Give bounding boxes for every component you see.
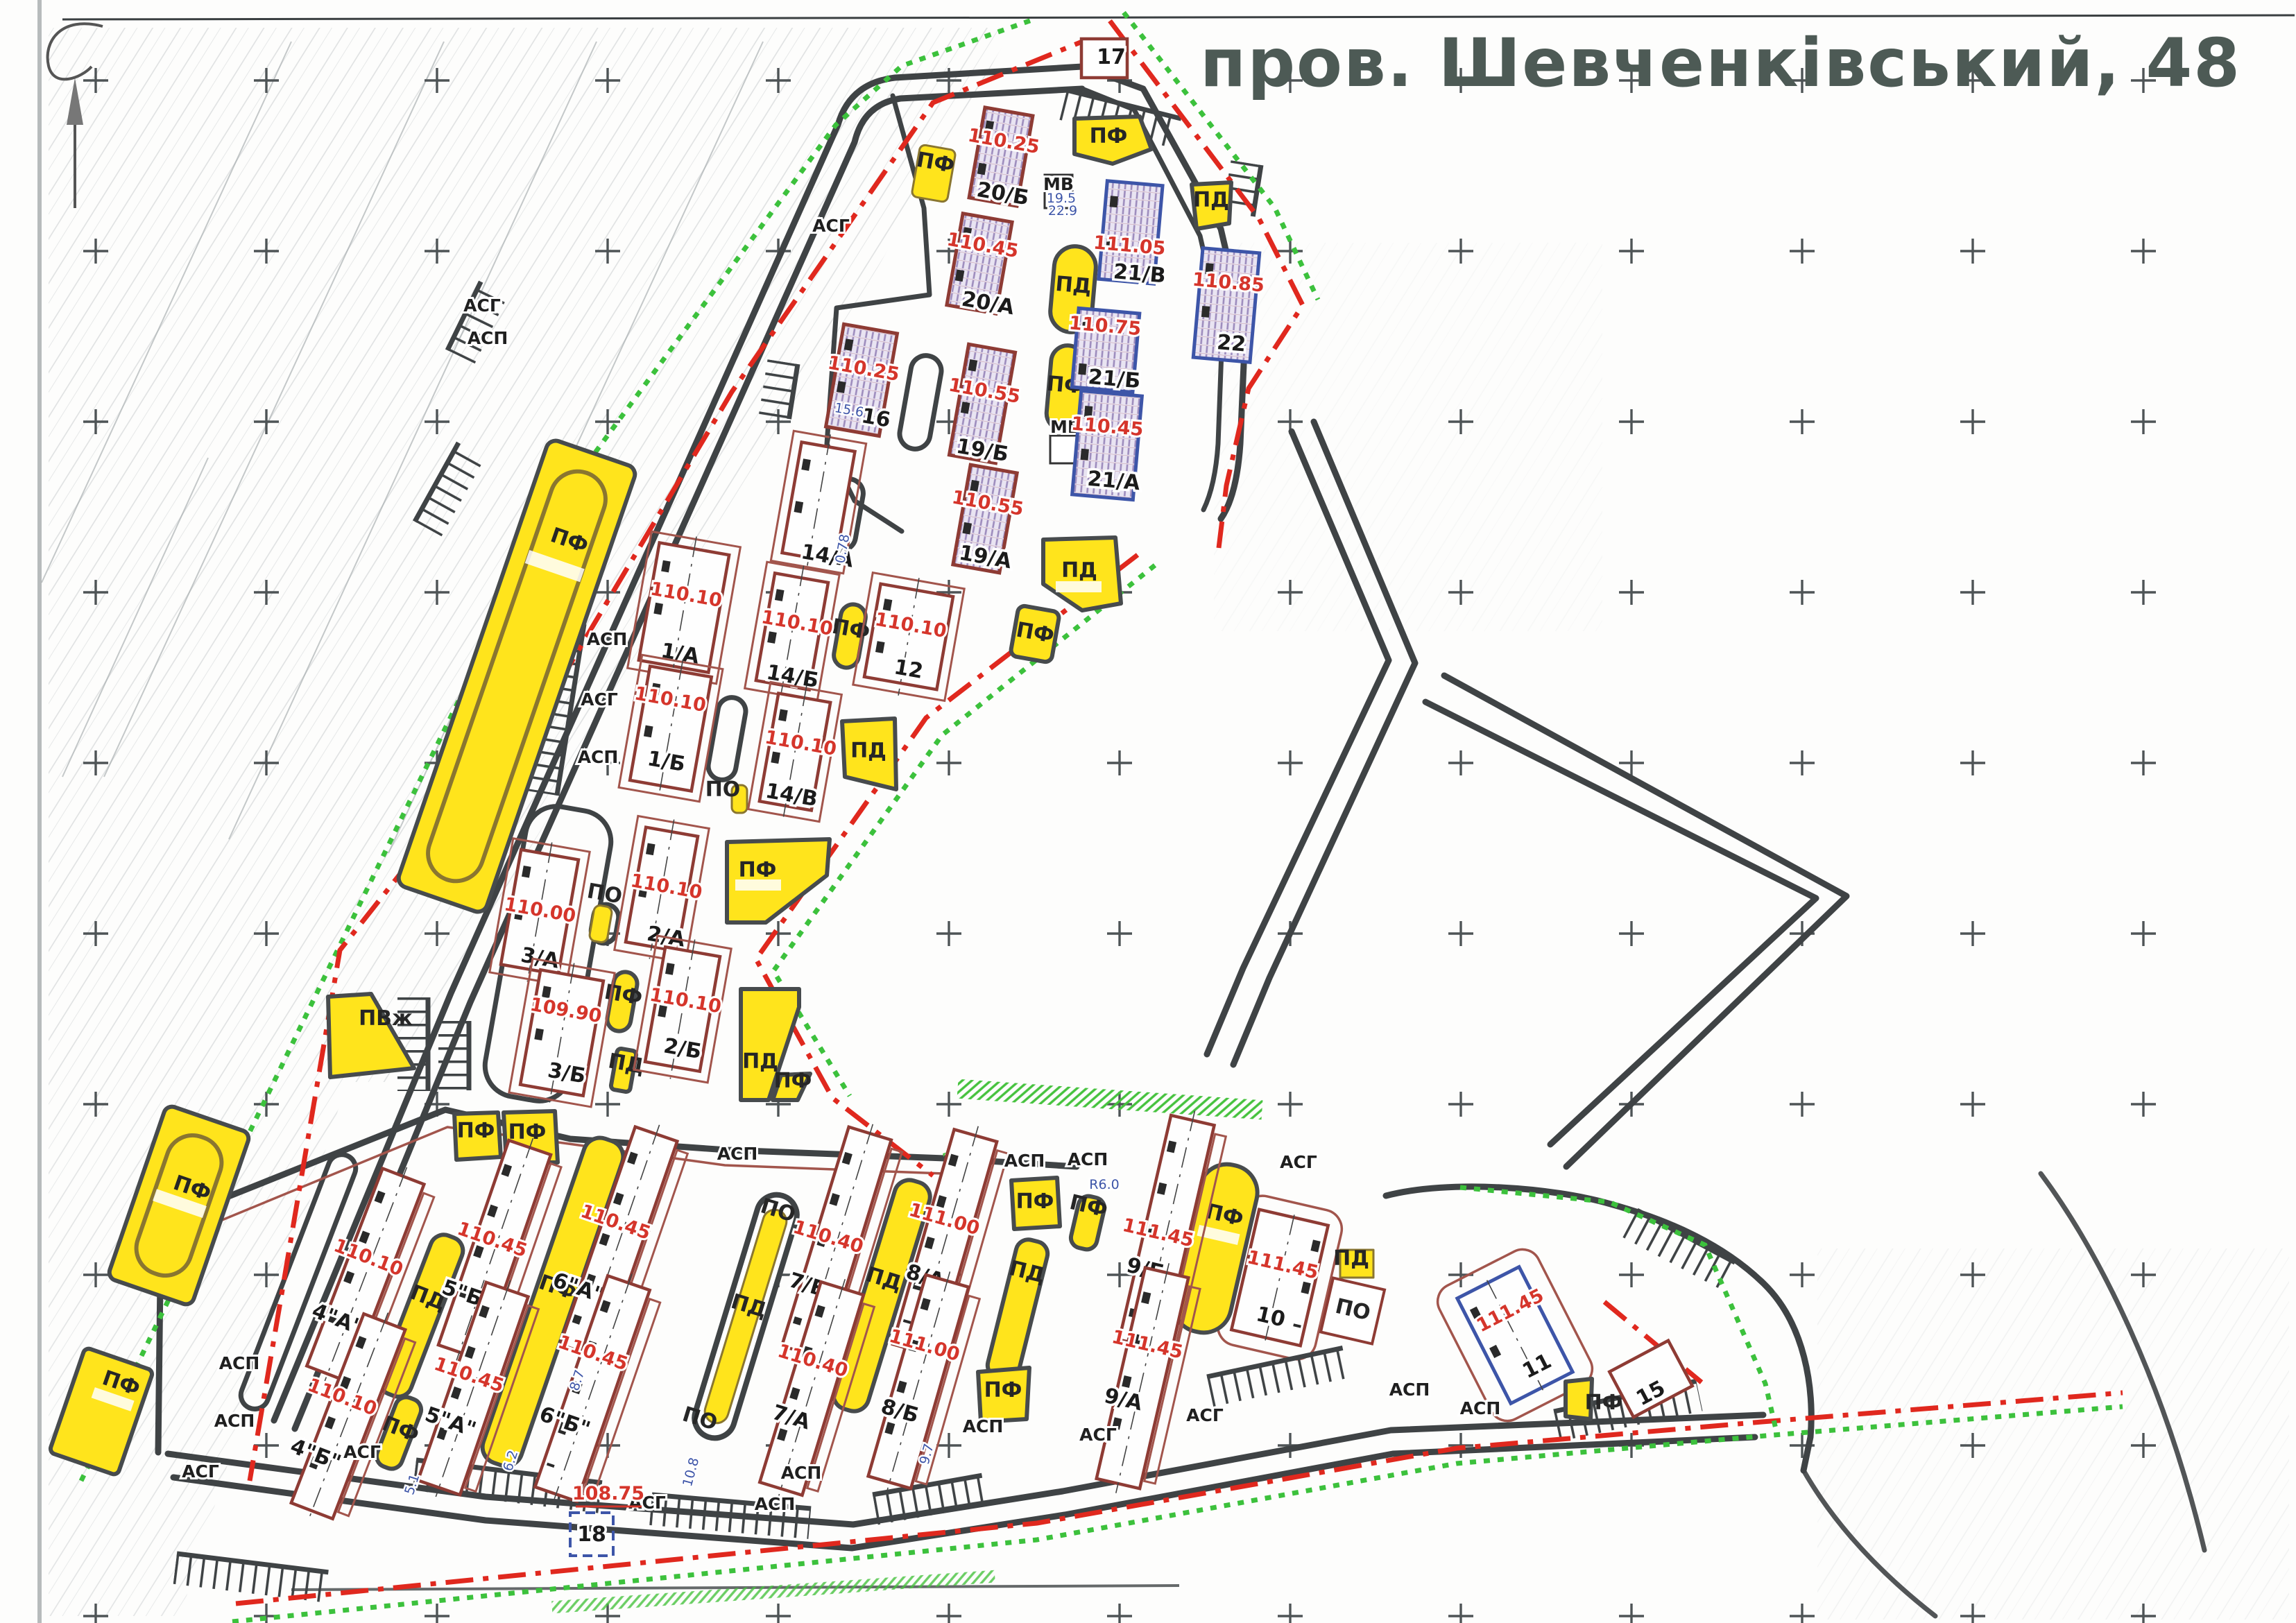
building-label: 16 [859,404,892,433]
area-label: ПФ [984,1378,1022,1402]
spot-elevation: 108.75 [572,1483,644,1504]
parking-label: АСГ [581,689,618,710]
dimension: R6.0 [1089,1177,1119,1192]
area-pd-triangle-14v: ПД [842,719,896,789]
parking-label: АСП [1389,1380,1430,1400]
mv-dim: 22.9 [1048,203,1077,218]
parking-label: АСГ [1186,1405,1224,1425]
area-pd-topright: ПД [1192,182,1231,229]
area-label: ПД [1061,558,1097,583]
building-label: 12 [892,655,925,684]
building-label: 21/Б [1087,365,1141,393]
area-label: ПД [850,739,886,763]
area-label: ПФ [739,858,777,882]
parking-label: АСП [468,328,508,348]
area-label: ПФ [774,1069,812,1093]
area-pf-quad5a: ПФ [454,1113,501,1160]
parking-label: АСП [1004,1151,1045,1171]
area-label: ПФ [1585,1391,1623,1415]
area-po-building: ПО [1321,1278,1385,1343]
parking-label: АСП [587,629,628,649]
area-label: ПФ [1016,1190,1054,1214]
parking-label: АСП [781,1463,822,1483]
parking-label: АСГ [1079,1425,1117,1445]
area-label: ПД [1333,1246,1369,1271]
building-label: 17 [1097,45,1126,69]
area-label: ПД [1054,272,1093,299]
building-label: 22 [1216,330,1247,357]
building-label: 21/В [1113,259,1167,288]
parking-label: АСП [578,747,619,767]
area-pf-right-top: ПФ [1011,1178,1060,1229]
area-label: ПД [1193,188,1229,212]
area-label: ПВж [359,1006,413,1031]
building-label: 21/А [1086,467,1141,496]
parking-label: АСГ [1280,1152,1317,1172]
parking-label: АСГ [463,295,501,316]
parking-label: АСГ [343,1442,381,1462]
area-label: ПО [705,778,741,802]
parking-label: АСП [214,1411,255,1431]
building-21b: 21/Б 110.75 [1063,307,1146,393]
parking-label: АСГ [812,216,850,236]
area-label: ПД [742,1049,778,1074]
parking-label: АСП [1068,1149,1108,1169]
page-title: пров. Шевченківський, 48 [1200,24,2241,102]
site-plan-sheet: ПФ ПФ ПФ ПВж ПФ ПФ ПД ПФ МВ 19.5 22.9 МВ [0,0,2296,1623]
parking-label: АСП [755,1494,796,1514]
area-pf-below-pd: ПФ [1010,605,1060,662]
mv-station-top: МВ 19.5 22.9 [1043,174,1077,218]
area-label: ПФ [457,1119,495,1143]
parking-label: АСГ [182,1461,219,1482]
parking-label: АСП [963,1416,1004,1436]
parking-label: АСП [219,1353,260,1373]
parking-label: АСП [717,1144,758,1164]
building-17: 17 [1081,39,1127,78]
area-pf-right-bottom: ПФ [978,1368,1029,1422]
parking-label: АСП [1460,1398,1501,1418]
area-pd-small-right: ПД [1333,1246,1373,1278]
area-label: ПФ [1090,124,1128,148]
building-label: 18 [577,1522,606,1547]
